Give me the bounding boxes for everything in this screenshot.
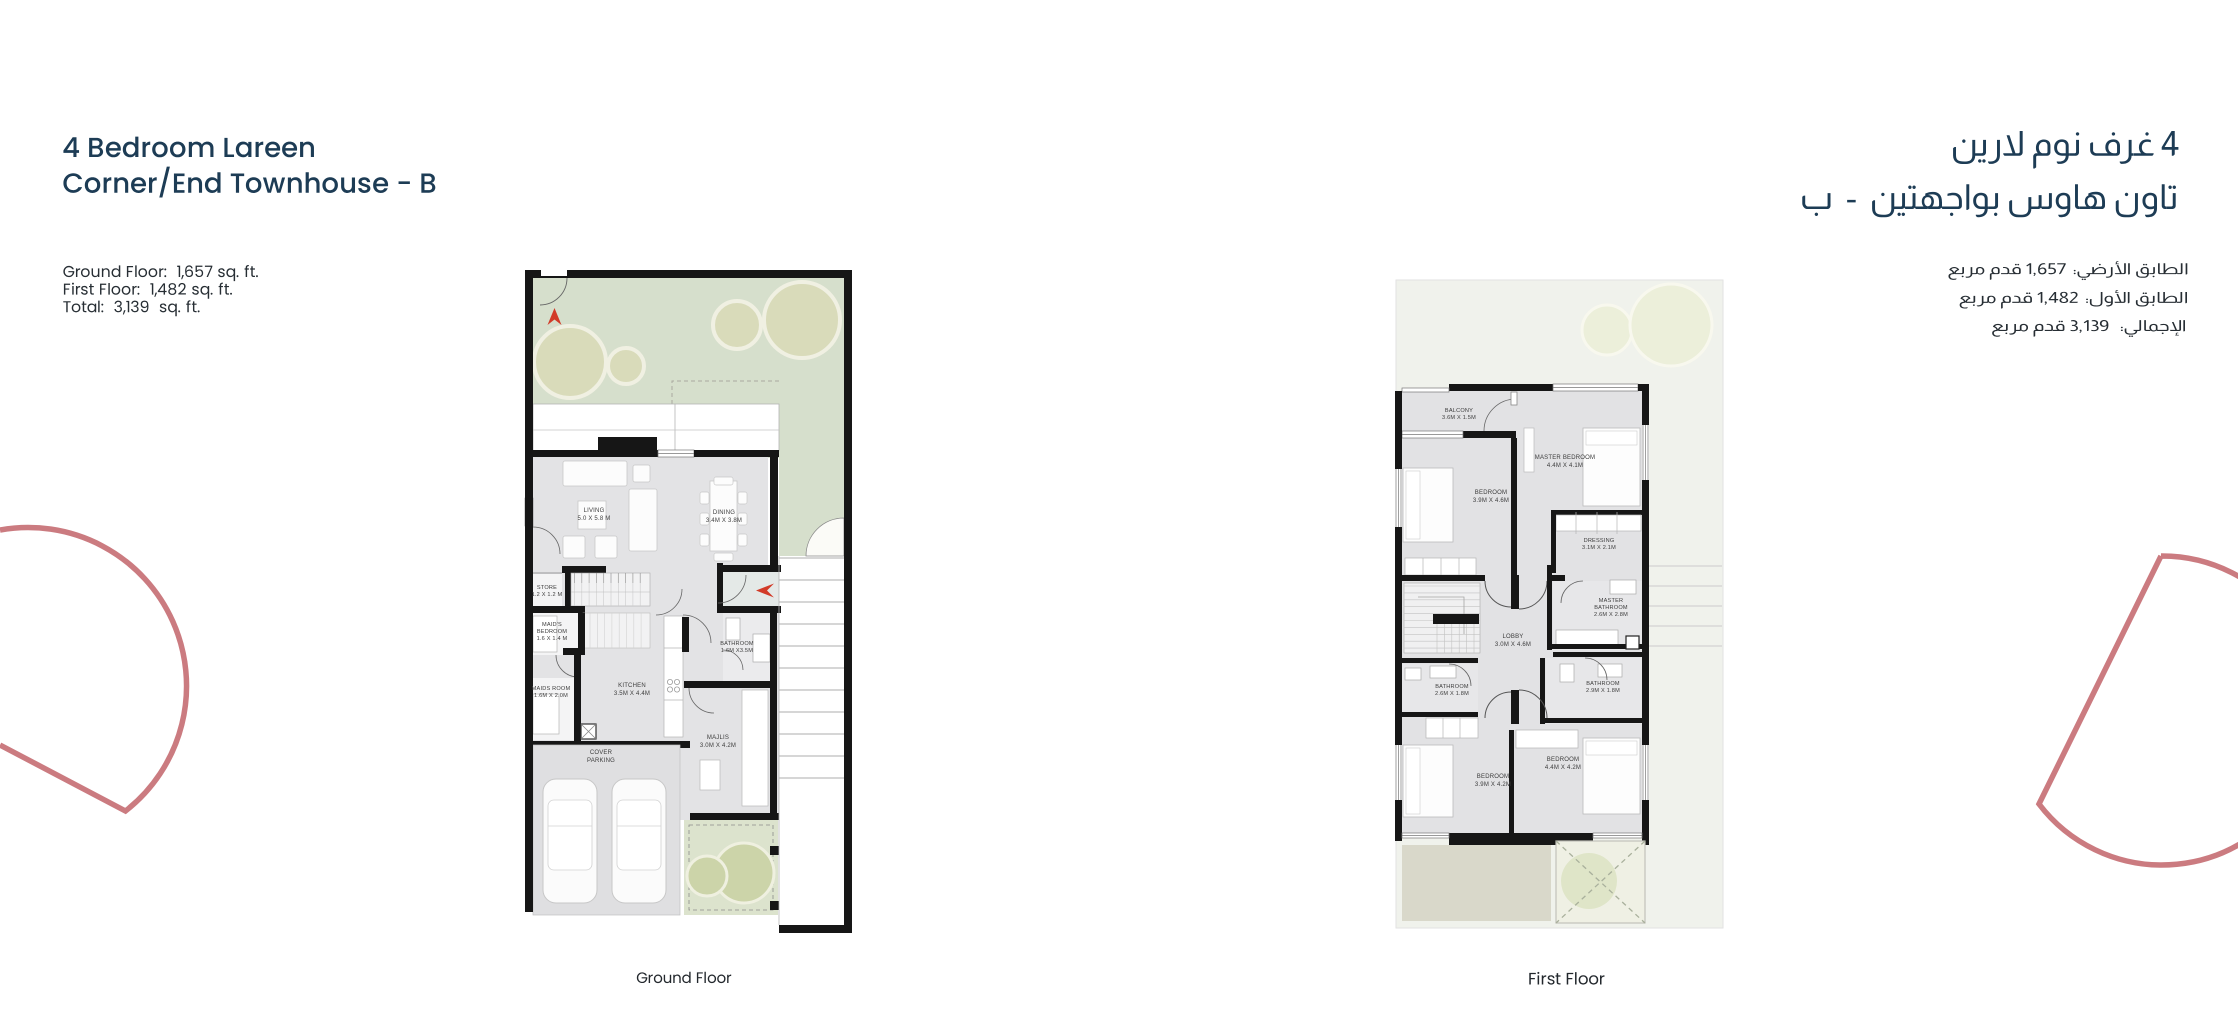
- svg-text:BALCONY: BALCONY: [1445, 408, 1473, 414]
- svg-text:2.6M X 2.8M: 2.6M X 2.8M: [1594, 612, 1628, 618]
- svg-text:MAID'S: MAID'S: [542, 622, 562, 628]
- svg-text:LOBBY: LOBBY: [1502, 634, 1523, 640]
- svg-text:MASTER BEDROOM: MASTER BEDROOM: [1535, 455, 1595, 461]
- svg-text:DRESSING: DRESSING: [1584, 538, 1615, 544]
- svg-text:BEDROOM: BEDROOM: [1477, 774, 1509, 780]
- svg-text:LIVING: LIVING: [584, 508, 605, 514]
- svg-text:BATHROOM: BATHROOM: [1435, 684, 1469, 690]
- svg-text:1.6 X 1.4 M: 1.6 X 1.4 M: [537, 636, 568, 642]
- svg-text:BATHROOM: BATHROOM: [1594, 605, 1628, 611]
- svg-text:1.2 X 1.2 M: 1.2 X 1.2 M: [532, 592, 563, 598]
- svg-text:1.6M X3.5M: 1.6M X3.5M: [721, 648, 753, 654]
- svg-text:BEDROOM: BEDROOM: [537, 629, 567, 635]
- svg-text:4.4M X 4.1M: 4.4M X 4.1M: [1547, 463, 1583, 469]
- svg-text:2.9M X 1.8M: 2.9M X 1.8M: [1586, 688, 1620, 694]
- svg-text:BATHROOM: BATHROOM: [720, 641, 754, 647]
- svg-text:MAJLIS: MAJLIS: [707, 735, 729, 741]
- svg-text:STORE: STORE: [537, 585, 557, 591]
- svg-text:4.4M X 4.2M: 4.4M X 4.2M: [1545, 765, 1581, 771]
- svg-text:BATHROOM: BATHROOM: [1586, 681, 1620, 687]
- svg-text:1.6M X 2.0M: 1.6M X 2.0M: [534, 693, 568, 699]
- svg-text:PARKING: PARKING: [587, 758, 615, 764]
- svg-text:COVER: COVER: [590, 750, 613, 756]
- svg-text:DINING: DINING: [713, 510, 735, 516]
- svg-text:5.0 X 5.8 M: 5.0 X 5.8 M: [578, 516, 611, 522]
- svg-text:MAIDS ROOM: MAIDS ROOM: [532, 686, 571, 692]
- svg-text:KITCHEN: KITCHEN: [618, 683, 646, 689]
- svg-text:3.5M X 4.4M: 3.5M X 4.4M: [614, 691, 650, 697]
- svg-text:3.0M X 4.2M: 3.0M X 4.2M: [700, 743, 736, 749]
- svg-text:3.9M X 4.2M: 3.9M X 4.2M: [1475, 782, 1511, 788]
- svg-text:3.4M X 3.8M: 3.4M X 3.8M: [706, 518, 742, 524]
- svg-text:3.0M X 4.6M: 3.0M X 4.6M: [1495, 642, 1531, 648]
- svg-text:MASTER: MASTER: [1599, 598, 1624, 604]
- svg-text:BEDROOM: BEDROOM: [1547, 757, 1579, 763]
- svg-text:3.6M X 1.5M: 3.6M X 1.5M: [1442, 415, 1476, 421]
- svg-text:3.9M X 4.6M: 3.9M X 4.6M: [1473, 498, 1509, 504]
- svg-text:BEDROOM: BEDROOM: [1475, 490, 1507, 496]
- svg-text:3.1M X 2.1M: 3.1M X 2.1M: [1582, 545, 1616, 551]
- svg-text:2.6M X 1.8M: 2.6M X 1.8M: [1435, 691, 1469, 697]
